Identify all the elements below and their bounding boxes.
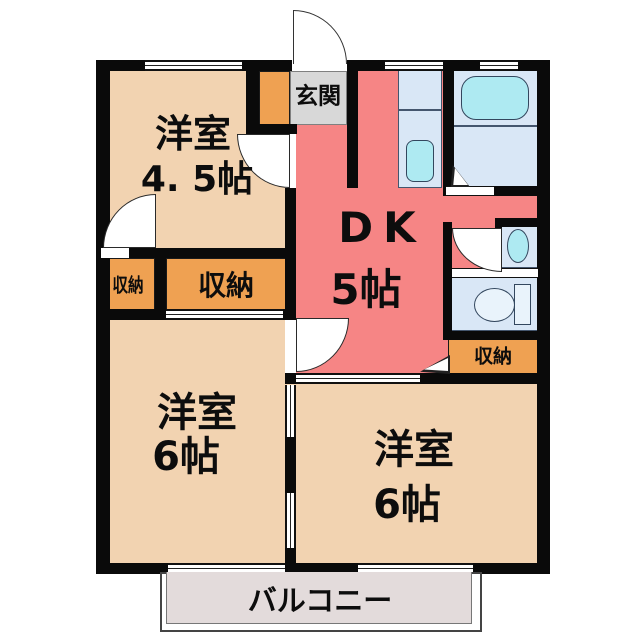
partition-sw-se-upper bbox=[285, 385, 296, 437]
room-se-name-label: 洋室 bbox=[374, 430, 454, 470]
wall-center-a4 bbox=[285, 548, 296, 574]
room-dk-size-label: 5帖 bbox=[330, 269, 401, 311]
shoe-cabinet bbox=[259, 71, 290, 125]
room-nw-name-label: 洋室 bbox=[155, 115, 231, 153]
wall-center-a3 bbox=[285, 437, 296, 493]
closet-left-label: 収納 bbox=[112, 277, 143, 296]
washbasin-icon bbox=[507, 229, 529, 263]
wall-entrance-right bbox=[347, 60, 358, 188]
closet-middle-sliding-door bbox=[166, 309, 283, 320]
window-top-bath bbox=[480, 60, 518, 71]
wall-center-a1 bbox=[285, 188, 296, 248]
entrance-label: 玄関 bbox=[295, 86, 341, 109]
bathroom-door bbox=[446, 186, 494, 196]
window-top-kitchen bbox=[385, 60, 443, 71]
balcony-label: バルコニー bbox=[248, 587, 392, 616]
closet-right-label: 収納 bbox=[474, 348, 512, 367]
bathroom-divider bbox=[453, 125, 537, 127]
wall-between-closets bbox=[155, 258, 166, 309]
room-sw-size-label: 6帖 bbox=[152, 437, 220, 477]
kitchen-sink-icon bbox=[406, 140, 434, 182]
wall-toilet-bottom bbox=[443, 331, 538, 340]
wall-shoe-cabinet-left bbox=[246, 60, 259, 134]
door-opening-sw bbox=[285, 320, 296, 373]
toilet-icon bbox=[474, 288, 515, 322]
toilet-tank-icon bbox=[514, 284, 531, 325]
closet-middle-label: 収納 bbox=[198, 272, 254, 300]
window-top-nw bbox=[145, 60, 242, 71]
partition-sw-se-lower bbox=[285, 493, 296, 548]
entrance-door-arc bbox=[293, 10, 347, 64]
floor-plan: 洋室 4. 5帖 玄関 DK 5帖 収納 収納 収納 洋室 6帖 洋室 6帖 バ… bbox=[0, 0, 640, 640]
closet-left-opening bbox=[101, 248, 129, 258]
room-dk-name-label: DK bbox=[338, 207, 425, 249]
room-se-size-label: 6帖 bbox=[373, 485, 441, 525]
bathtub-icon bbox=[461, 76, 529, 120]
wall-under-entrance bbox=[246, 124, 297, 134]
wall-washroom-top bbox=[495, 218, 538, 227]
kitchen-counter-upper bbox=[398, 70, 442, 110]
sliding-door-dk-se bbox=[296, 373, 420, 384]
room-se-floor bbox=[285, 373, 550, 574]
wall-toilet-left bbox=[443, 222, 452, 340]
wall-right bbox=[537, 60, 550, 574]
room-nw-size-label: 4. 5帖 bbox=[141, 162, 253, 198]
wall-center-a2 bbox=[285, 258, 296, 309]
room-sw-name-label: 洋室 bbox=[157, 393, 237, 433]
